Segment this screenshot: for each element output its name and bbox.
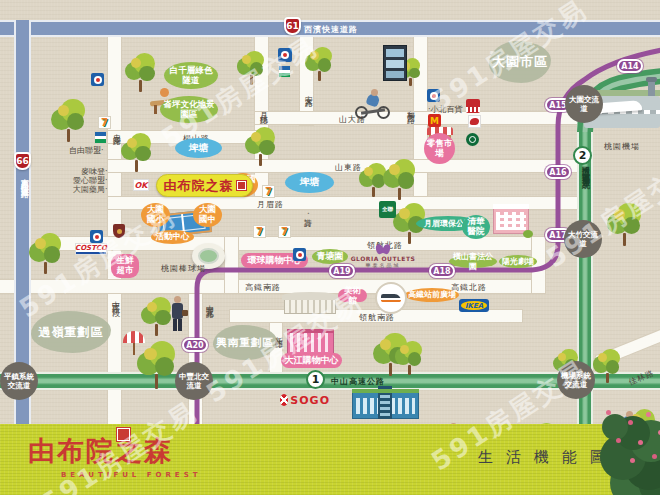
watermark-text: 591房屋交易 [425,0,594,119]
watermark-text: 591房屋交易 [425,352,594,479]
watermark-text: 591房屋交易 [155,29,324,156]
watermark-text: 591房屋交易 [13,199,182,326]
watermark-text: 591房屋交易 [540,149,660,276]
watermark-text: 591房屋交易 [200,284,369,411]
lifestyle-map: 大園市區過嶺重劃區興南重劃區 [0,0,660,495]
watermark-layer: 591房屋交易591房屋交易591房屋交易591房屋交易591房屋交易591房屋… [0,0,660,495]
watermark-text: 591房屋交易 [35,394,204,495]
